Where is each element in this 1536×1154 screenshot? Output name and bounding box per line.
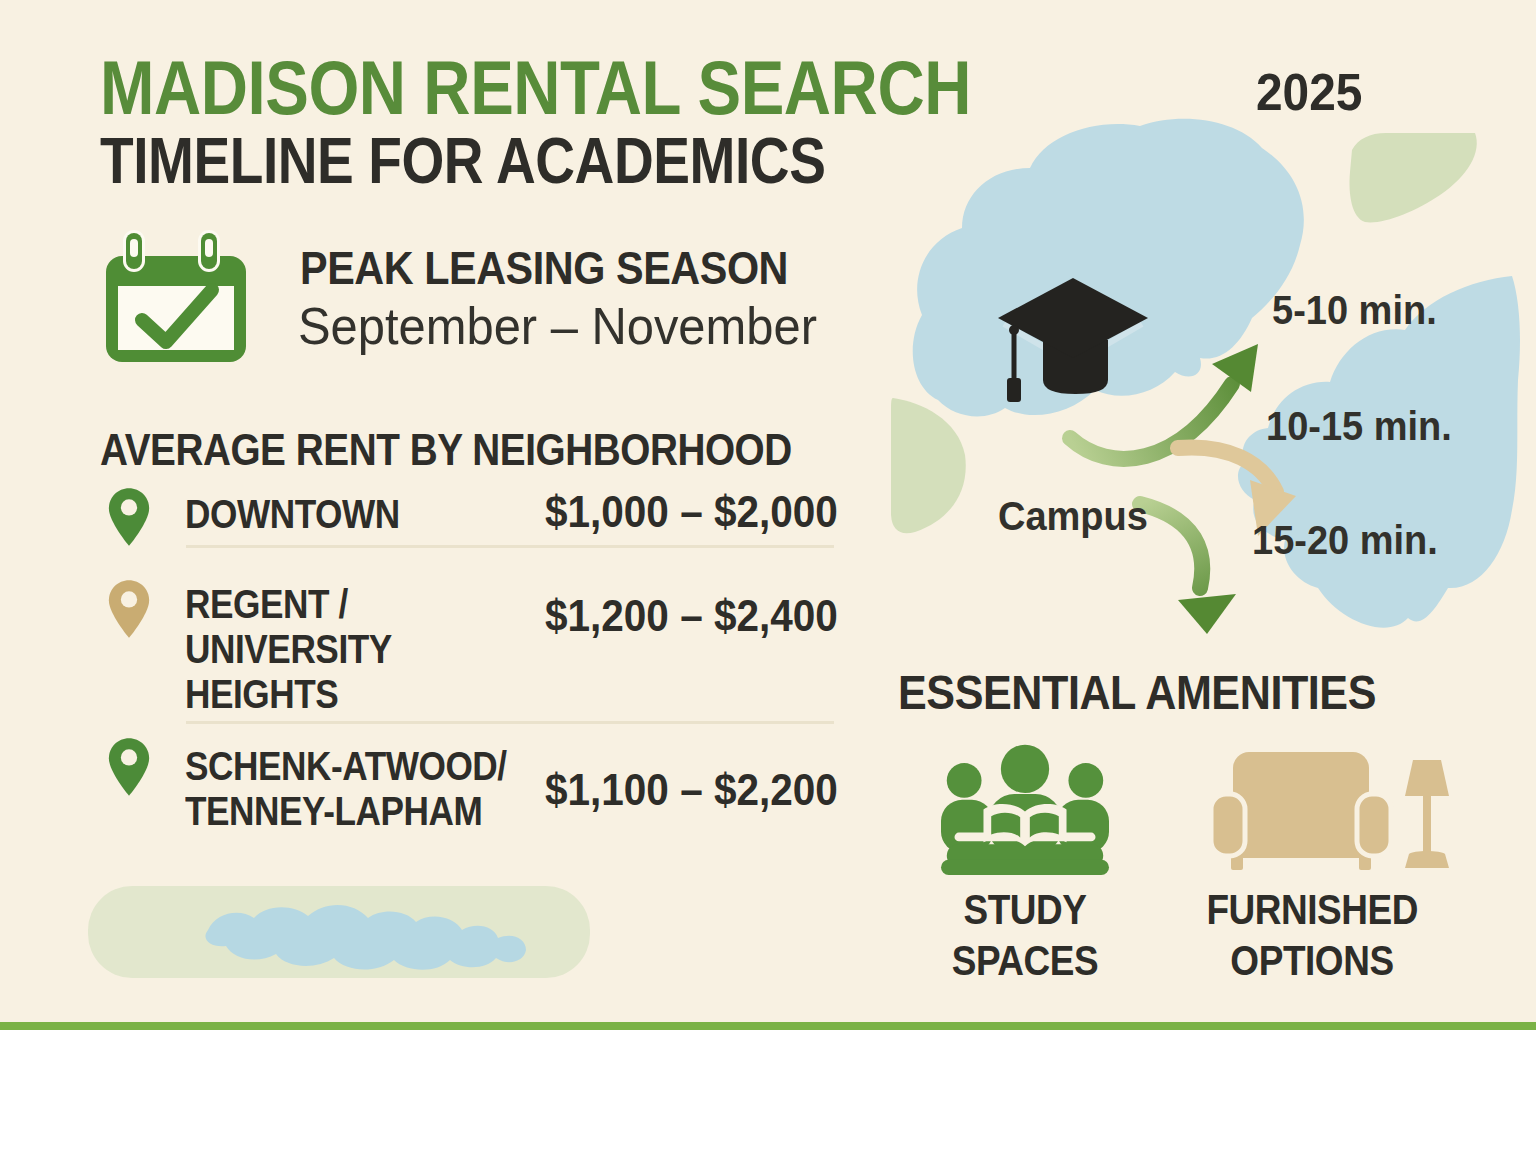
amenity-label: FURNISHED OPTIONS (1206, 884, 1417, 986)
decorative-lake-banner (88, 886, 590, 978)
calendar-ring-right (198, 230, 220, 272)
tan-map-pin-icon (106, 578, 152, 640)
neighborhood-name: SCHENK-ATWOOD/ TENNEY-LAPHAM (185, 744, 507, 834)
amenities-heading: ESSENTIAL AMENITIES (898, 664, 1376, 720)
rent-range: $1,000 – $2,000 (545, 486, 838, 538)
travel-time-label: 10-15 min. (1266, 404, 1452, 449)
travel-time-label: 15-20 min. (1252, 518, 1438, 563)
calendar-check-icon (100, 226, 252, 368)
study-spaces-icon (932, 738, 1118, 878)
neighborhood-name: REGENT / UNIVERSITY HEIGHTS (185, 582, 392, 718)
green-map-pin-icon (106, 486, 152, 548)
rent-range: $1,100 – $2,200 (545, 764, 838, 816)
green-map-pin-icon (106, 736, 152, 798)
furnished-options-icon (1203, 748, 1461, 870)
page-subtitle: TIMELINE FOR ACADEMICS (100, 124, 825, 198)
park-shape-top (1350, 133, 1477, 223)
arrowhead-15-20 (1178, 594, 1236, 634)
campus-label: Campus (998, 494, 1148, 539)
amenity-label: STUDY SPACES (941, 884, 1108, 986)
calendar-ring-left (123, 230, 145, 272)
row-divider (186, 545, 834, 548)
floor-lamp-icon (1405, 760, 1449, 868)
peak-season-range: September – November (298, 296, 817, 356)
row-divider (186, 721, 834, 724)
travel-time-label: 5-10 min. (1272, 288, 1437, 333)
page-title: MADISON RENTAL SEARCH (100, 44, 971, 131)
rent-range: $1,200 – $2,400 (545, 590, 838, 642)
rent-section-heading: AVERAGE RENT BY NEIGHBORHOOD (100, 424, 792, 476)
campus-map-graphic (880, 100, 1536, 700)
infographic-background: MADISON RENTAL SEARCH TIMELINE FOR ACADE… (0, 0, 1536, 1022)
neighborhood-name: DOWNTOWN (185, 492, 400, 537)
peak-season-heading: PEAK LEASING SEASON (300, 240, 788, 295)
infographic: MADISON RENTAL SEARCH TIMELINE FOR ACADE… (0, 0, 1536, 1154)
footer-accent-line (0, 1022, 1536, 1030)
arrow-to-15-20 (1140, 504, 1202, 588)
park-shape-left (891, 398, 966, 533)
